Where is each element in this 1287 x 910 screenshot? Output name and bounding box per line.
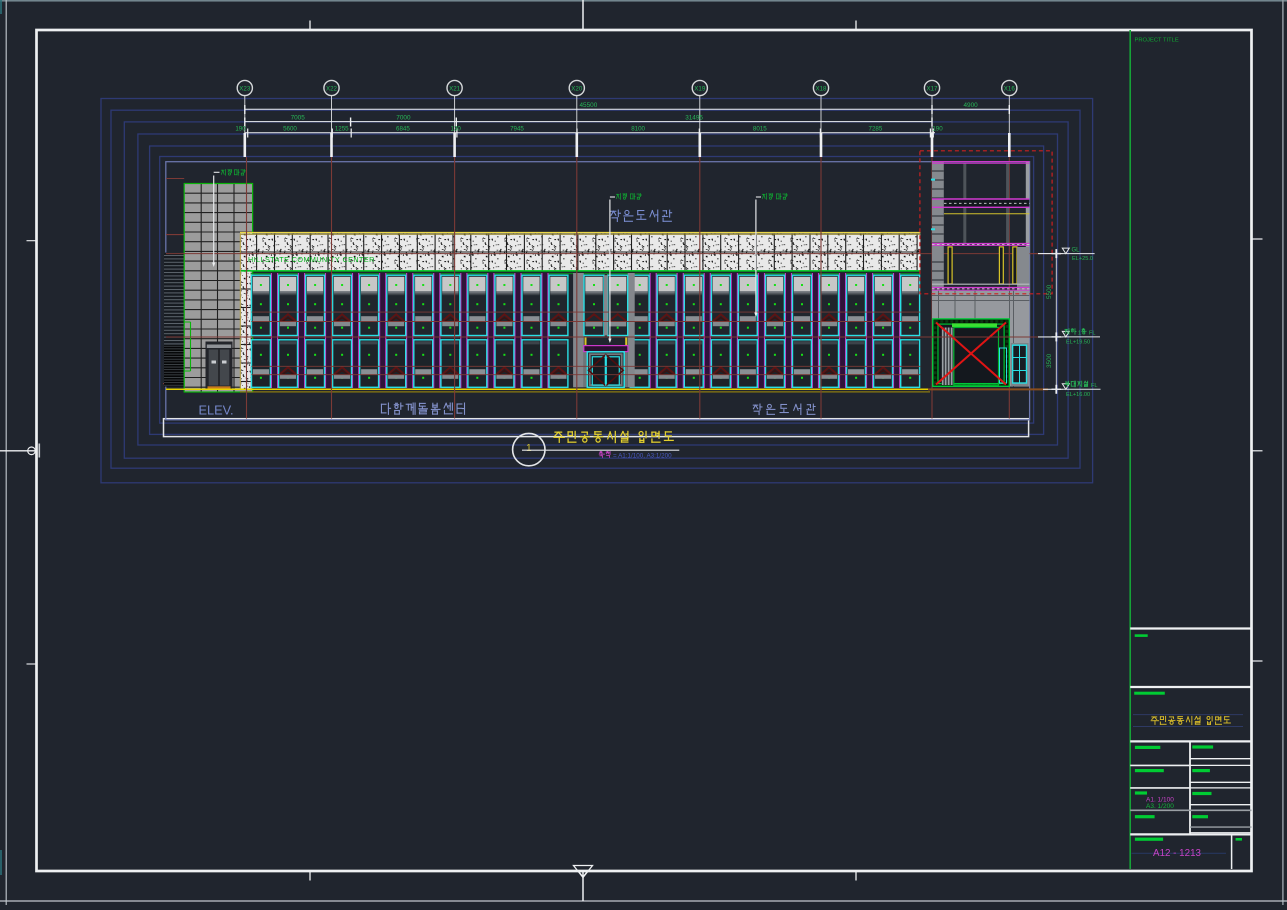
svg-text:8015: 8015 bbox=[753, 126, 767, 133]
svg-text:X21: X21 bbox=[449, 85, 461, 92]
svg-text:X22: X22 bbox=[326, 85, 338, 92]
svg-text:31495: 31495 bbox=[685, 114, 703, 121]
svg-text:EL+16.00: EL+16.00 bbox=[1066, 392, 1090, 398]
svg-text:130: 130 bbox=[451, 126, 462, 133]
svg-text:7005: 7005 bbox=[291, 114, 306, 121]
svg-text:7285: 7285 bbox=[869, 126, 883, 133]
svg-text:EL+25.0: EL+25.0 bbox=[1072, 256, 1093, 262]
svg-text:190: 190 bbox=[235, 126, 246, 133]
svg-text:6845: 6845 bbox=[396, 126, 410, 133]
svg-text:1: 1 bbox=[1078, 330, 1081, 336]
svg-text:FL: FL bbox=[1089, 330, 1096, 336]
svg-text:PROJECT TITLE: PROJECT TITLE bbox=[1135, 38, 1179, 44]
svg-text:45500: 45500 bbox=[580, 102, 598, 109]
svg-text:3500: 3500 bbox=[1046, 353, 1053, 368]
svg-text:5500: 5500 bbox=[1046, 284, 1053, 299]
svg-text:A12 - 1213: A12 - 1213 bbox=[1153, 848, 1201, 859]
svg-text:ELEV.: ELEV. bbox=[198, 403, 233, 418]
svg-text:190: 190 bbox=[932, 126, 943, 133]
svg-text:5600: 5600 bbox=[283, 126, 297, 133]
svg-text:7000: 7000 bbox=[396, 114, 411, 121]
svg-text:X23: X23 bbox=[239, 85, 251, 92]
svg-text:X19: X19 bbox=[694, 85, 706, 92]
svg-text:EL+19.50: EL+19.50 bbox=[1066, 339, 1090, 345]
svg-text:= A1:1/100, A3:1/200: = A1:1/100, A3:1/200 bbox=[613, 452, 672, 459]
svg-text:X16: X16 bbox=[1004, 85, 1016, 92]
svg-text:X18: X18 bbox=[815, 85, 827, 92]
svg-text:1: 1 bbox=[526, 443, 531, 454]
svg-text:7945: 7945 bbox=[510, 126, 524, 133]
svg-text:1255: 1255 bbox=[335, 126, 349, 133]
svg-text:HILLSTATE COMMUNITY CENTER: HILLSTATE COMMUNITY CENTER bbox=[248, 255, 375, 264]
svg-text:X20: X20 bbox=[571, 85, 583, 92]
svg-text:4900: 4900 bbox=[963, 102, 978, 109]
svg-text:8100: 8100 bbox=[631, 126, 645, 133]
svg-text:FL: FL bbox=[1091, 383, 1098, 389]
svg-text:A3. 1/200: A3. 1/200 bbox=[1146, 803, 1174, 810]
svg-text:X17: X17 bbox=[926, 85, 938, 92]
svg-text:GL: GL bbox=[1072, 248, 1081, 254]
